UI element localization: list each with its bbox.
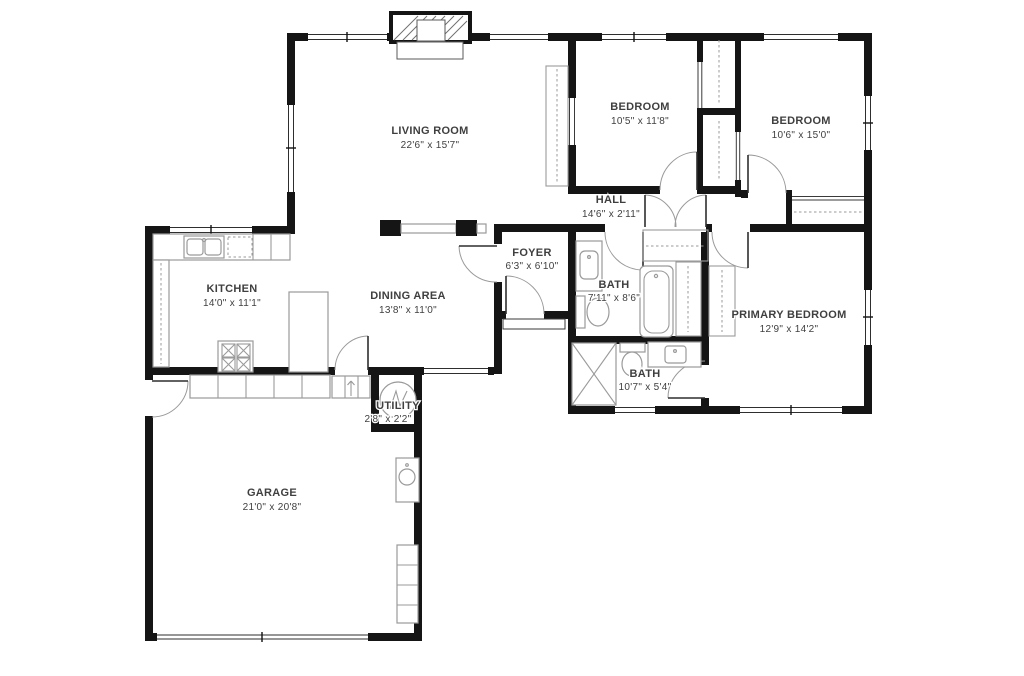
garage-dims: 21'0" x 20'8" bbox=[243, 502, 302, 513]
hall-dims: 14'6" x 2'11" bbox=[582, 209, 640, 220]
living-room-top-window-2 bbox=[490, 33, 548, 41]
living-room-west-window bbox=[286, 105, 296, 192]
utility-dims: 2'8" x 2'2" bbox=[364, 414, 411, 425]
kitchen-label: KITCHEN bbox=[207, 283, 258, 295]
garage-steps bbox=[332, 376, 370, 398]
living-room-label: LIVING ROOM bbox=[391, 125, 468, 137]
bedroom1-dims: 10'5" x 11'8" bbox=[611, 116, 669, 127]
utility-label: UTILITY bbox=[376, 400, 420, 412]
floor-plan-page: LIVING ROOM 22'6" x 15'7" BEDROOM 10'5" … bbox=[0, 0, 1024, 676]
floor-plan-drawing: LIVING ROOM 22'6" x 15'7" BEDROOM 10'5" … bbox=[0, 0, 1024, 676]
walls bbox=[145, 33, 872, 641]
dining-bottom-window bbox=[424, 367, 488, 375]
hall-label: HALL bbox=[596, 194, 627, 206]
bedroom2-top-window bbox=[764, 33, 838, 41]
primary-right-window bbox=[863, 290, 873, 345]
living-room-builtin bbox=[546, 66, 568, 186]
bedroom1-label: BEDROOM bbox=[610, 101, 670, 113]
fireplace-chimney bbox=[391, 13, 470, 59]
primary-bedroom-door bbox=[712, 232, 748, 268]
garage-shelves bbox=[397, 545, 418, 623]
garage-cabinets bbox=[190, 375, 330, 398]
hall-bath-door bbox=[605, 232, 643, 270]
laundry-sink bbox=[396, 458, 419, 502]
primary-closet bbox=[709, 266, 735, 336]
entry-door bbox=[506, 276, 544, 314]
stove bbox=[218, 341, 253, 372]
hall-bath-dims: 7'11" x 8'6" bbox=[588, 293, 640, 304]
living-room-console bbox=[380, 220, 486, 236]
garage-door-opening bbox=[157, 632, 368, 642]
hall-bath-label: BATH bbox=[599, 279, 630, 291]
bedroom2-dims: 10'6" x 15'0" bbox=[772, 130, 831, 141]
windows bbox=[157, 32, 873, 642]
garage-fixtures bbox=[190, 375, 419, 623]
bath2-bottom-window bbox=[615, 406, 655, 414]
primary-bedroom-dims: 12'9" x 14'2" bbox=[760, 324, 819, 335]
garage-label: GARAGE bbox=[247, 487, 297, 499]
foyer-dining-door bbox=[459, 246, 497, 282]
dining-label: DINING AREA bbox=[370, 290, 446, 302]
foyer-label: FOYER bbox=[512, 247, 551, 259]
bathtub bbox=[640, 266, 673, 337]
bath2-vanity bbox=[648, 342, 701, 367]
bedroom2-door bbox=[748, 155, 786, 193]
hall-linen-door-right bbox=[675, 195, 706, 227]
living-room-dims: 22'6" x 15'7" bbox=[401, 140, 460, 151]
primary-bath-dims: 10'7" x 5'4" bbox=[619, 382, 672, 393]
garage-side-door bbox=[152, 381, 188, 417]
foyer-dims: 6'3" x 6'10" bbox=[506, 261, 559, 272]
hall-linen-door-left bbox=[645, 195, 676, 227]
bedroom1-door bbox=[660, 152, 697, 190]
dining-dims: 13'8" x 11'0" bbox=[379, 305, 437, 316]
bedroom2-wall-closet bbox=[792, 197, 864, 213]
living-room-top-window bbox=[308, 32, 387, 42]
garage-steps-door bbox=[335, 336, 368, 370]
bedroom2-right-window bbox=[863, 96, 873, 150]
primary-bath-label: BATH bbox=[630, 368, 661, 380]
primary-bottom-window bbox=[740, 405, 842, 415]
bedroom1-top-window bbox=[602, 32, 666, 42]
bedroom2-label: BEDROOM bbox=[771, 115, 831, 127]
primary-bedroom-label: PRIMARY BEDROOM bbox=[731, 309, 846, 321]
bath-linen-column bbox=[676, 262, 701, 336]
kitchen-peninsula bbox=[289, 292, 328, 372]
kitchen-sink bbox=[184, 236, 224, 258]
hall-linen-closet bbox=[643, 230, 708, 261]
shower bbox=[572, 343, 616, 405]
kitchen-dims: 14'0" x 11'1" bbox=[203, 298, 261, 309]
